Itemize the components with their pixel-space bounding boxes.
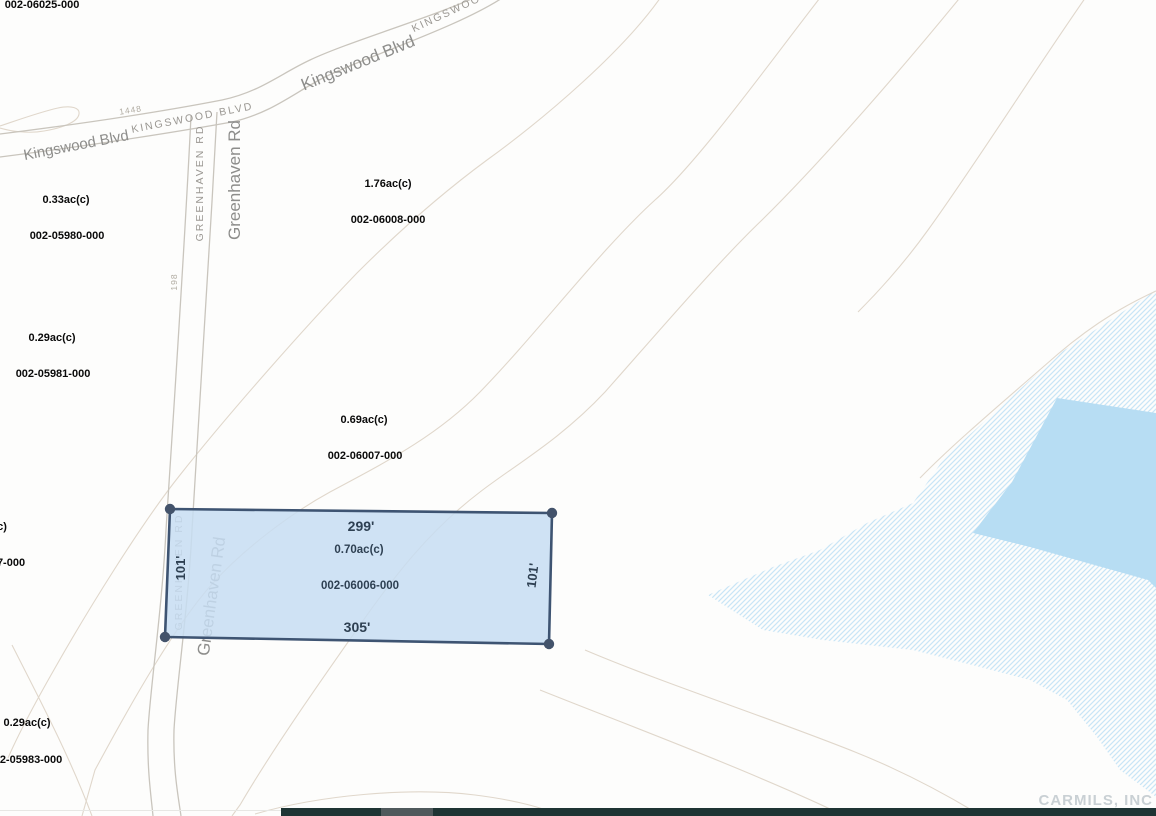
- greenhaven-rd-label-north: Greenhaven Rd: [225, 120, 244, 240]
- vendor-watermark: CARMILS, INC: [1039, 792, 1154, 809]
- address-number-198: 198: [169, 273, 179, 290]
- dimension-top-299ft: 299': [348, 518, 375, 534]
- acreage-002-05980: 0.33ac(c): [42, 194, 89, 206]
- dimension-bottom-305ft: 305': [344, 619, 371, 635]
- acreage-002-05981: 0.29ac(c): [28, 332, 75, 344]
- acreage-002-05983: 0.29ac(c): [3, 717, 50, 729]
- parcel-id-002-06008-000: 002-06008-000: [351, 214, 426, 226]
- greenhaven-rd-caps-label-north: GREENHAVEN RD: [194, 125, 206, 242]
- parcel-corner-handle[interactable]: [547, 508, 557, 518]
- parcel-corner-handle[interactable]: [160, 632, 170, 642]
- dimension-left-101ft: 101': [173, 556, 188, 581]
- parcel-map-canvas[interactable]: GREENHAVEN RDGreenhaven Rd 002-06025-000…: [0, 0, 1156, 816]
- parcel-corner-handle[interactable]: [544, 639, 554, 649]
- parcel-id-002-05983-000: 2-05983-000: [0, 754, 62, 766]
- map-bottom-edge-line: [0, 810, 281, 811]
- parcel-id-002-05981-000: 002-05981-000: [16, 368, 91, 380]
- selected-parcel-id: 002-06006-000: [321, 580, 399, 592]
- acreage-002-06008: 1.76ac(c): [364, 178, 411, 190]
- acreage-clipped-west: c): [0, 521, 7, 533]
- dimension-right-101ft: 101': [524, 562, 542, 588]
- parcel-id-clipped-west: 7-000: [0, 557, 25, 569]
- horizontal-scrollbar-thumb[interactable]: [381, 808, 433, 816]
- selected-parcel-acreage: 0.70ac(c): [334, 544, 383, 556]
- acreage-002-06007: 0.69ac(c): [340, 414, 387, 426]
- parcel-id-002-06007-000: 002-06007-000: [328, 450, 403, 462]
- horizontal-scrollbar-track[interactable]: [281, 808, 1156, 816]
- parcel-corner-handle[interactable]: [165, 504, 175, 514]
- parcel-id-002-05980-000: 002-05980-000: [30, 230, 105, 242]
- map-viewport[interactable]: GREENHAVEN RDGreenhaven Rd 002-06025-000…: [0, 0, 1156, 816]
- parcel-id-002-06025-000: 002-06025-000: [5, 0, 80, 11]
